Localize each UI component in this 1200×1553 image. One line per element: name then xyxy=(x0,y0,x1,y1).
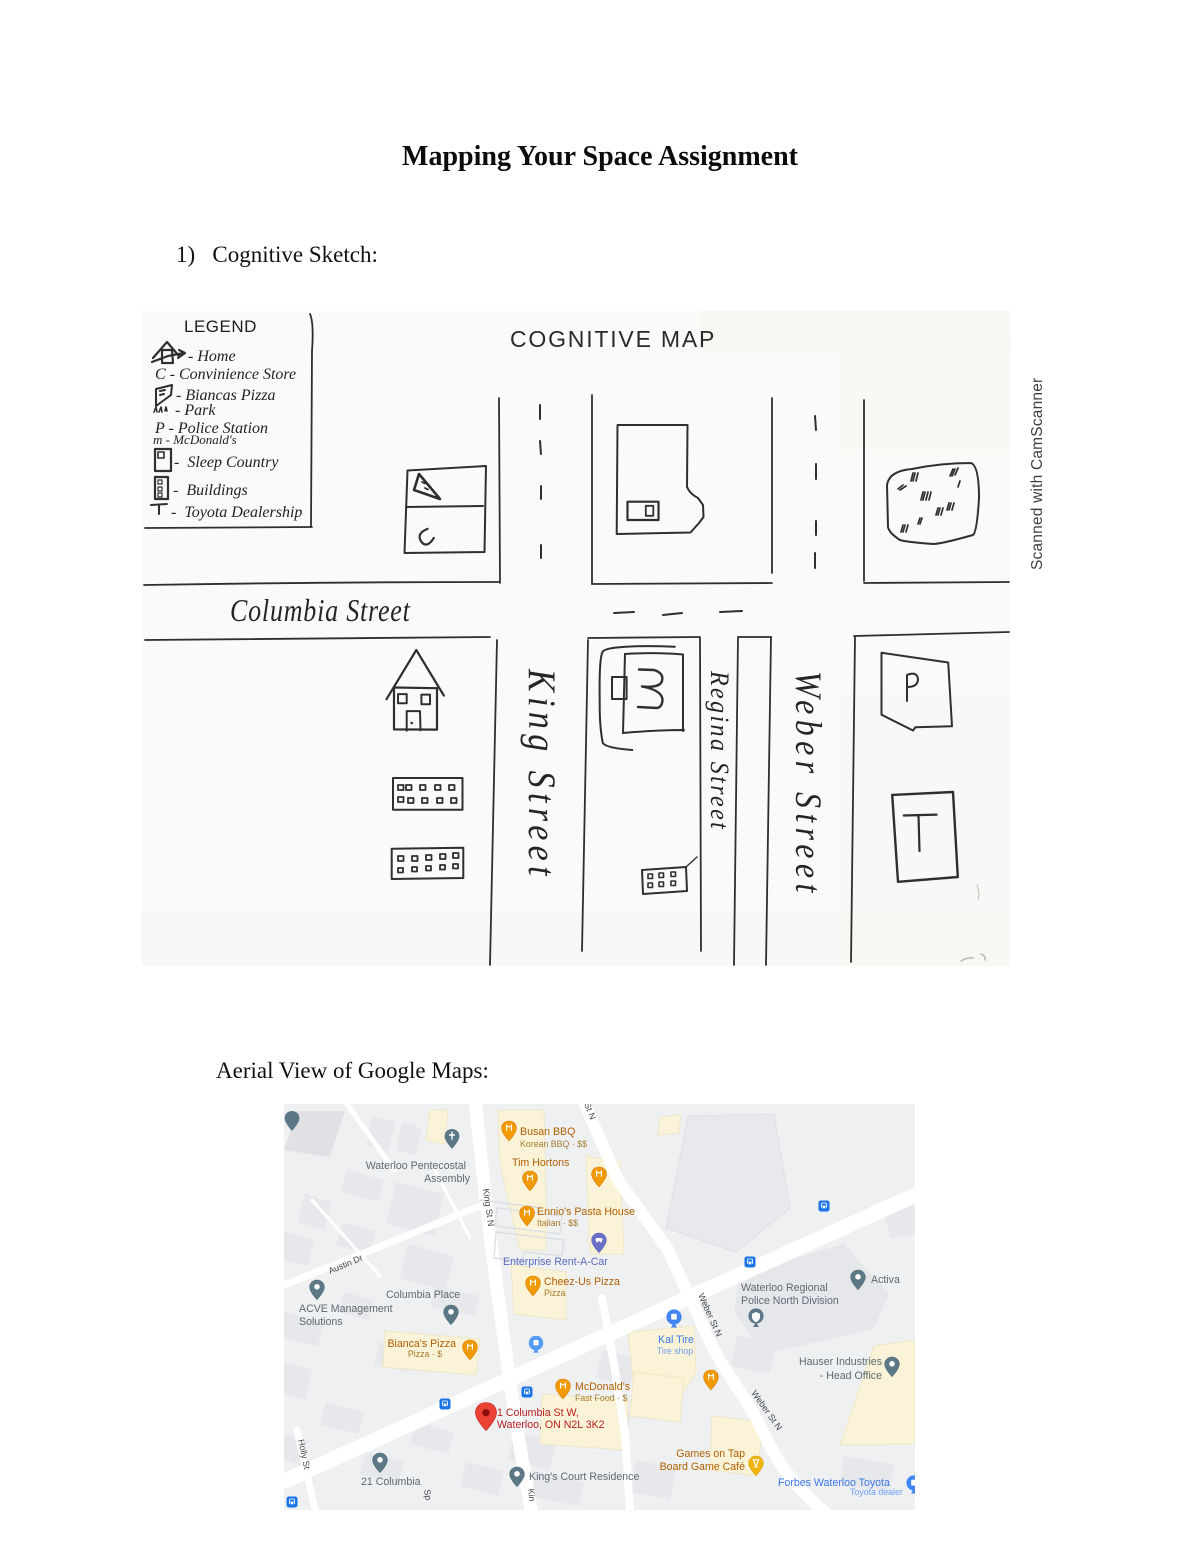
svg-text:COGNITIVE MAP: COGNITIVE MAP xyxy=(510,326,716,352)
svg-text:Korean BBQ · $$: Korean BBQ · $$ xyxy=(520,1139,587,1149)
svg-text:Kin: Kin xyxy=(526,1488,537,1502)
svg-text:Kal Tire: Kal Tire xyxy=(658,1334,694,1346)
svg-text:Ennio's Pasta House: Ennio's Pasta House xyxy=(537,1206,635,1218)
svg-text:Columbia Street: Columbia Street xyxy=(230,594,411,629)
svg-text:ACVE Management: ACVE Management xyxy=(299,1303,393,1315)
svg-text:- Buildings: - Buildings xyxy=(173,482,248,499)
svg-text:King Street: King Street xyxy=(520,668,564,881)
svg-text:Waterloo Regional: Waterloo Regional xyxy=(741,1282,828,1294)
svg-text:Police North Division: Police North Division xyxy=(741,1295,839,1307)
svg-text:- Toyota Dealership: - Toyota Dealership xyxy=(171,504,302,521)
svg-text:Hauser Industries: Hauser Industries xyxy=(799,1356,882,1368)
svg-text:- Park: - Park xyxy=(175,402,216,419)
svg-text:Tim Hortons: Tim Hortons xyxy=(512,1157,569,1169)
svg-text:Busan BBQ: Busan BBQ xyxy=(520,1126,575,1138)
svg-text:- Sleep Country: - Sleep Country xyxy=(174,454,279,471)
svg-text:Pizza: Pizza xyxy=(544,1288,566,1298)
svg-text:Fast Food · $: Fast Food · $ xyxy=(575,1393,627,1403)
svg-text:Italian · $$: Italian · $$ xyxy=(537,1218,578,1228)
svg-text:m - McDonald's: m - McDonald's xyxy=(153,432,237,447)
svg-text:- Head Office: - Head Office xyxy=(820,1370,882,1382)
svg-text:LEGEND: LEGEND xyxy=(184,317,257,336)
svg-text:21 Columbia: 21 Columbia xyxy=(361,1476,421,1488)
svg-text:McDonald's: McDonald's xyxy=(575,1381,630,1393)
svg-text:Solutions: Solutions xyxy=(299,1316,343,1328)
svg-text:Sp: Sp xyxy=(422,1489,434,1501)
svg-text:- Home: - Home xyxy=(188,348,236,365)
svg-text:Board Game Café: Board Game Café xyxy=(660,1461,745,1473)
svg-text:Activa: Activa xyxy=(871,1274,900,1286)
svg-text:Columbia Place: Columbia Place xyxy=(386,1289,460,1301)
svg-text:Waterloo Pentecostal: Waterloo Pentecostal xyxy=(366,1160,466,1172)
svg-text:Enterprise Rent-A-Car: Enterprise Rent-A-Car xyxy=(503,1256,608,1268)
svg-text:Assembly: Assembly xyxy=(424,1173,471,1185)
svg-text:1 Columbia St W,: 1 Columbia St W, xyxy=(497,1407,579,1419)
svg-text:C - Convinience Store: C - Convinience Store xyxy=(155,366,296,383)
svg-text:King's Court Residence: King's Court Residence xyxy=(529,1471,639,1483)
svg-text:Pizza · $: Pizza · $ xyxy=(408,1349,442,1359)
svg-text:Weber Street: Weber Street xyxy=(787,671,828,898)
svg-text:Regina Street: Regina Street xyxy=(705,670,736,831)
svg-text:Cheez-Us Pizza: Cheez-Us Pizza xyxy=(544,1276,620,1288)
svg-text:Games on Tap: Games on Tap xyxy=(676,1448,745,1460)
svg-text:Waterloo, ON N2L 3K2: Waterloo, ON N2L 3K2 xyxy=(497,1419,605,1431)
svg-text:Tire shop: Tire shop xyxy=(657,1346,693,1356)
svg-text:Toyota dealer: Toyota dealer xyxy=(850,1487,903,1497)
